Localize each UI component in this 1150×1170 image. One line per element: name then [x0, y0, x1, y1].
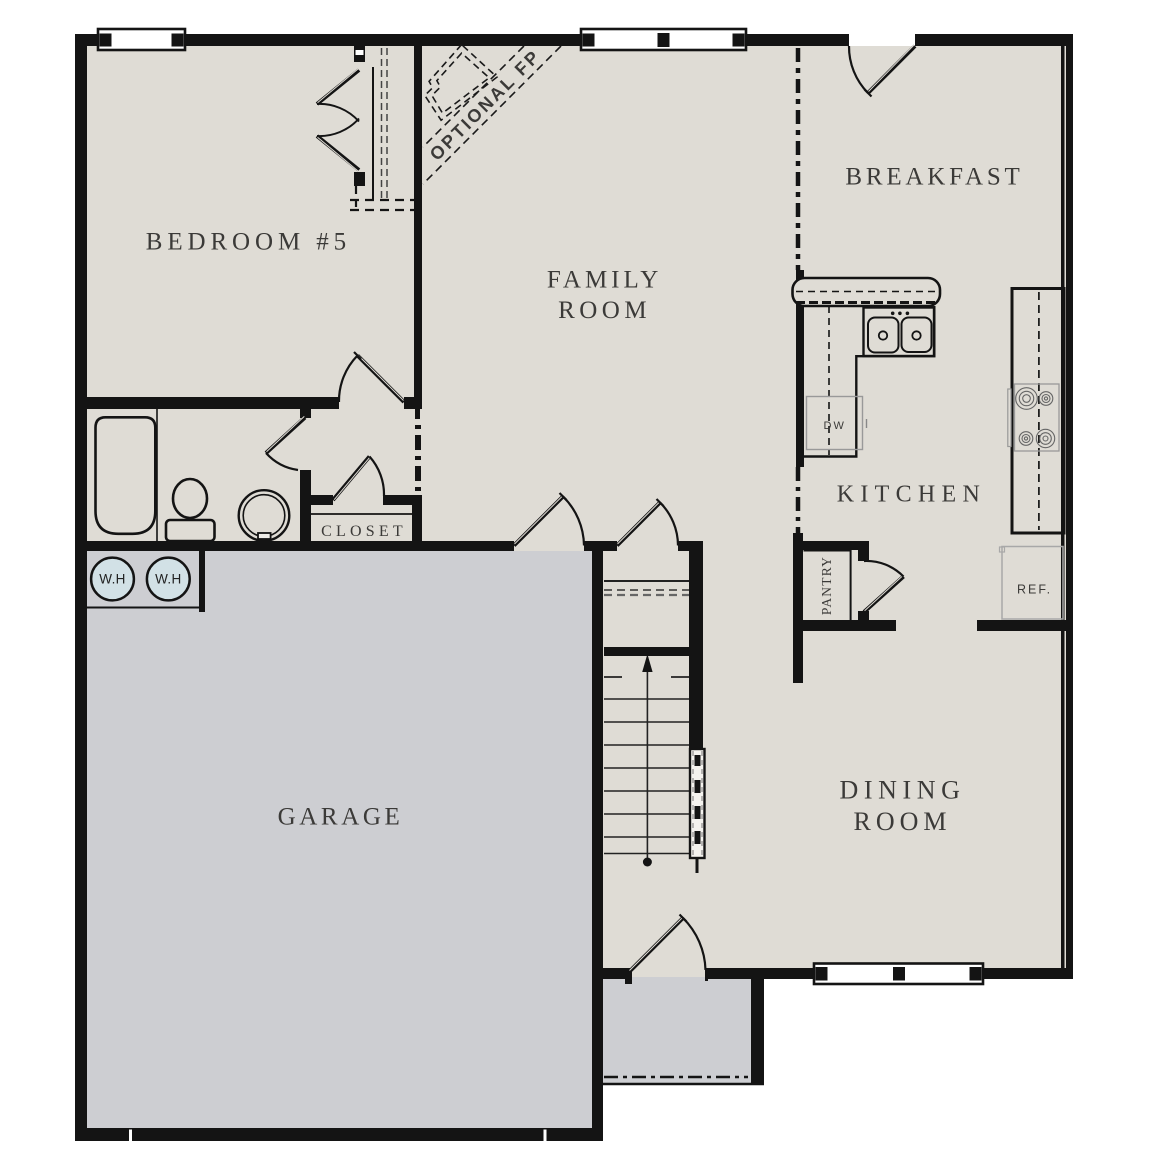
svg-text:REF.: REF. — [1017, 583, 1052, 597]
svg-text:ROOM: ROOM — [853, 807, 951, 836]
svg-text:DINING: DINING — [839, 776, 965, 805]
svg-text:ROOM: ROOM — [558, 297, 651, 324]
svg-text:W.H: W.H — [99, 572, 125, 587]
svg-text:FAMILY: FAMILY — [547, 267, 662, 294]
svg-text:GARAGE: GARAGE — [278, 804, 404, 831]
svg-text:W.H: W.H — [155, 572, 181, 587]
svg-text:DW: DW — [824, 420, 846, 432]
svg-text:CLOSET: CLOSET — [321, 523, 407, 540]
svg-text:PANTRY: PANTRY — [819, 556, 834, 615]
svg-text:BREAKFAST: BREAKFAST — [845, 164, 1023, 191]
svg-text:KITCHEN: KITCHEN — [837, 482, 986, 508]
svg-text:BEDROOM #5: BEDROOM #5 — [146, 229, 351, 256]
